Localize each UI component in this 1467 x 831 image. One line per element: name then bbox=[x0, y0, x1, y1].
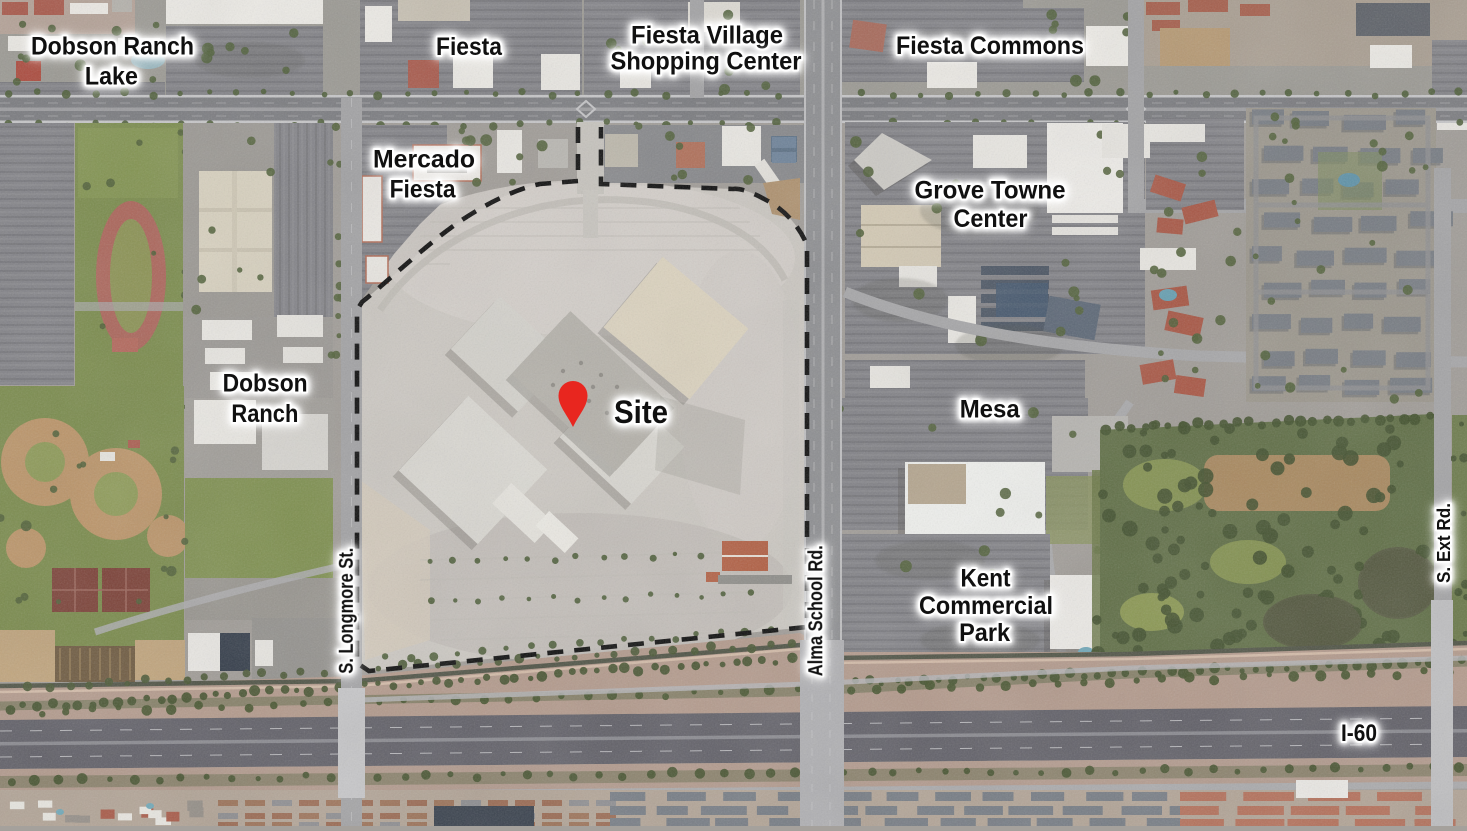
svg-text:Center: Center bbox=[954, 205, 1028, 233]
svg-text:Dobson: Dobson bbox=[223, 370, 308, 398]
svg-text:Shopping Center: Shopping Center bbox=[611, 47, 802, 75]
svg-text:Kent: Kent bbox=[961, 565, 1012, 593]
svg-text:I-60: I-60 bbox=[1341, 720, 1377, 747]
svg-text:Mercado: Mercado bbox=[373, 146, 475, 174]
svg-text:Mesa: Mesa bbox=[960, 395, 1021, 423]
svg-text:Park: Park bbox=[959, 619, 1010, 647]
svg-text:Fiesta: Fiesta bbox=[390, 175, 457, 203]
svg-text:Fiesta Commons: Fiesta Commons bbox=[896, 32, 1084, 60]
svg-text:S. Ext Rd.: S. Ext Rd. bbox=[1434, 503, 1454, 583]
svg-text:Grove Towne: Grove Towne bbox=[915, 176, 1066, 204]
svg-text:Fiesta: Fiesta bbox=[436, 33, 503, 61]
svg-text:Alma School Rd.: Alma School Rd. bbox=[806, 545, 828, 676]
svg-text:S. Longmore St.: S. Longmore St. bbox=[336, 548, 358, 674]
svg-text:Site: Site bbox=[614, 394, 668, 430]
svg-text:Ranch: Ranch bbox=[231, 400, 298, 428]
svg-text:Fiesta Village: Fiesta Village bbox=[631, 22, 783, 50]
svg-text:Lake: Lake bbox=[85, 62, 138, 90]
svg-text:Commercial: Commercial bbox=[919, 592, 1053, 620]
svg-text:Dobson Ranch: Dobson Ranch bbox=[31, 33, 194, 61]
